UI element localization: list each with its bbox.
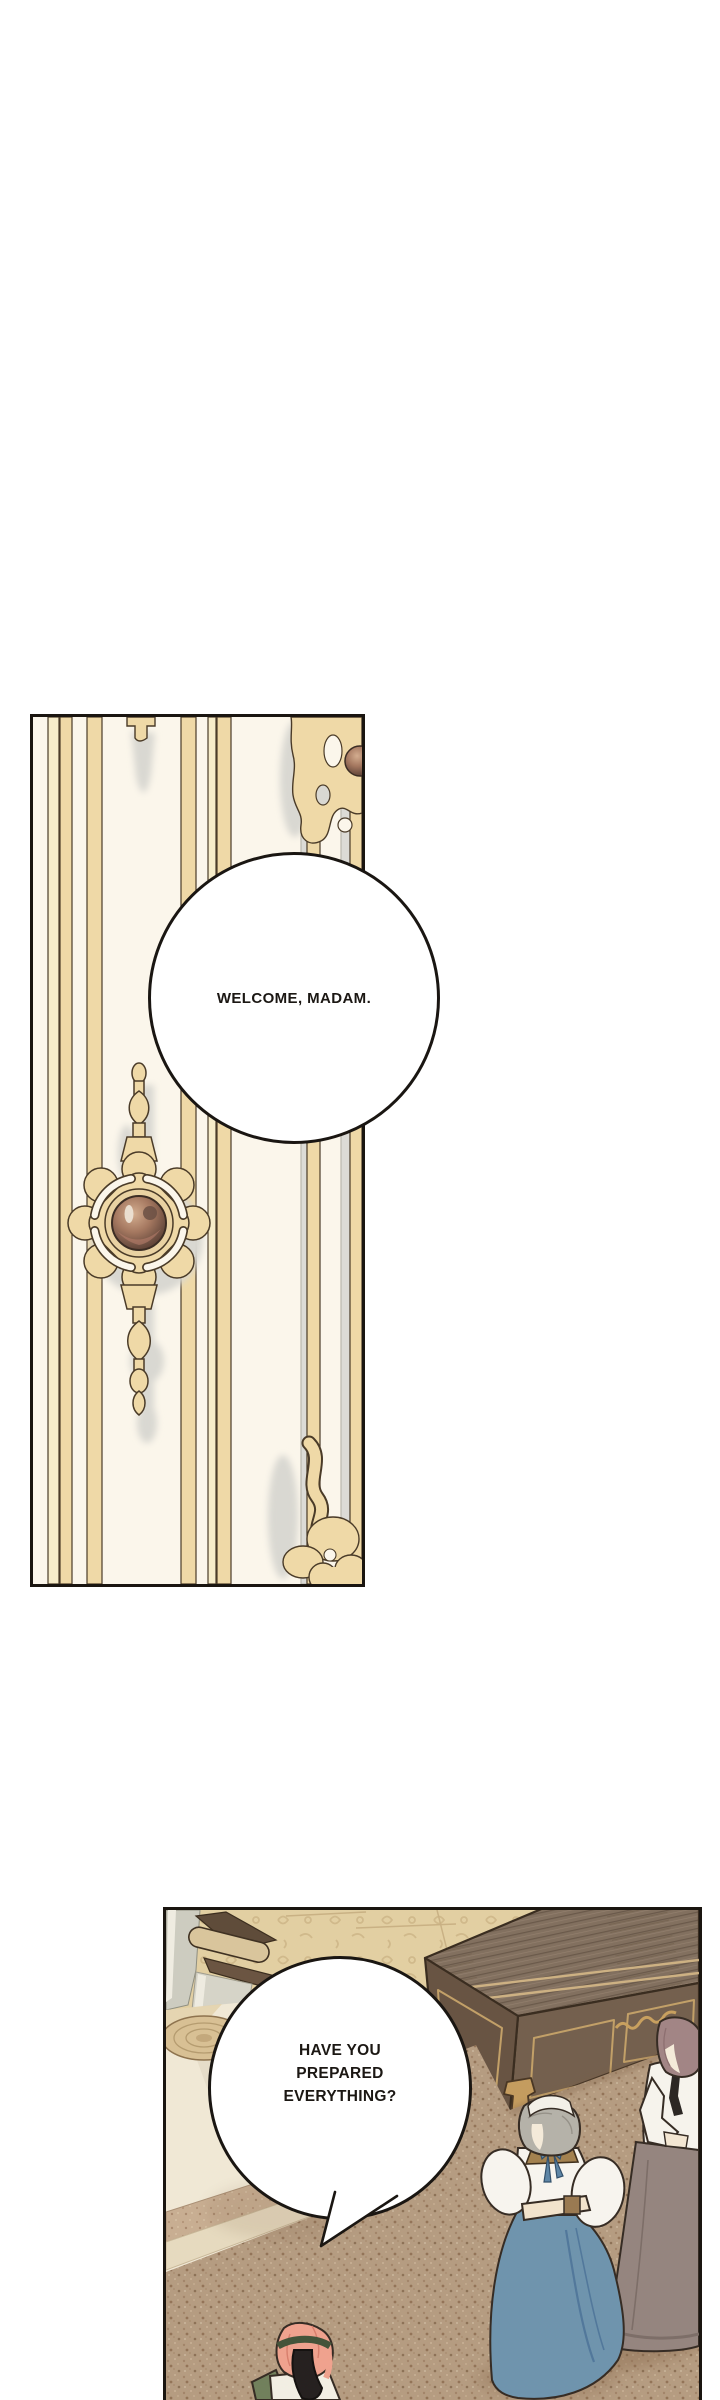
maid-cuff — [564, 2196, 580, 2214]
panel-door-closeup — [30, 714, 365, 1587]
speech-line-3: EVERYTHING? — [284, 2085, 397, 2108]
speech-line-2: PREPARED — [296, 2062, 383, 2085]
speech-text-welcome: WELCOME, MADAM. — [217, 990, 371, 1007]
comic-page: WELCOME, MADAM. HAVE YOU PREPARED EVERYT… — [0, 0, 720, 2400]
door-artwork — [33, 717, 362, 1584]
door-filigree-top — [291, 717, 362, 843]
speech-bubble-prepared: HAVE YOU PREPARED EVERYTHING? — [208, 1956, 472, 2220]
speech-bubble-welcome: WELCOME, MADAM. — [148, 852, 440, 1144]
door-knob — [105, 1189, 173, 1257]
speech-line-1: HAVE YOU — [299, 2039, 381, 2062]
